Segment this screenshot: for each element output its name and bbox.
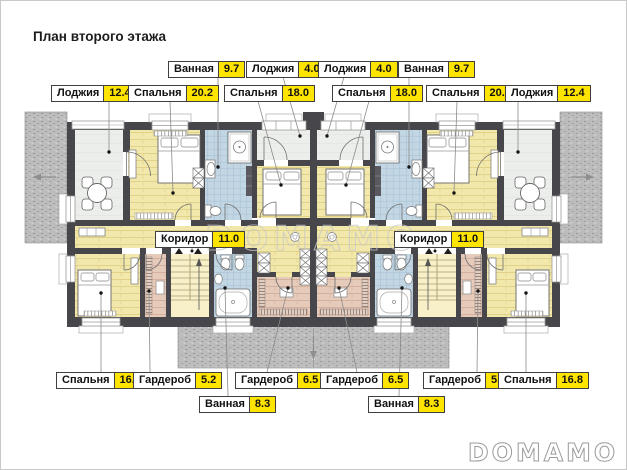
room-area: 20.2 bbox=[186, 86, 218, 101]
room-area: 18.0 bbox=[390, 86, 422, 101]
room-area: 4.0 bbox=[370, 62, 396, 77]
room-area: 11.0 bbox=[212, 232, 244, 247]
room-label-loggia12-r: Лоджия12.4 bbox=[505, 85, 591, 102]
cabinet bbox=[246, 166, 252, 196]
room-label-bathroom-tr: Ванная9.7 bbox=[398, 61, 475, 78]
room-name: Гардероб bbox=[236, 373, 297, 388]
room-area: 12.4 bbox=[557, 86, 589, 101]
room-name: Спальня bbox=[57, 373, 114, 388]
room-name: Ванная bbox=[169, 62, 218, 77]
room-label-loggia4-r: Лоджия4.0 bbox=[318, 61, 398, 78]
room-name: Лоджия bbox=[506, 86, 557, 101]
room-name: Спальня bbox=[333, 86, 390, 101]
room-label-wardrobe6-r: Гардероб6.5 bbox=[320, 372, 409, 389]
room-area: 8.3 bbox=[418, 397, 444, 412]
dresser bbox=[79, 228, 105, 236]
room-label-bathroom8-r: Ванная8.3 bbox=[368, 396, 445, 413]
room-name: Лоджия bbox=[247, 62, 298, 77]
room-label-loggia12-l: Лоджия12.4 bbox=[51, 85, 137, 102]
room-label-corridor-l: Коридор11.0 bbox=[155, 231, 245, 248]
room-label-bedroom20-l: Спальня20.2 bbox=[128, 85, 219, 102]
room-name: Ванная bbox=[399, 62, 448, 77]
room-name: Спальня bbox=[225, 86, 282, 101]
room-label-bedroom16-r: Спальня16.8 bbox=[498, 372, 589, 389]
room-area: 9.7 bbox=[448, 62, 474, 77]
room-label-wardrobe6-l: Гардероб6.5 bbox=[235, 372, 324, 389]
dresser bbox=[131, 258, 138, 284]
room-label-bedroom20-r: Спальня20.2 bbox=[426, 85, 517, 102]
room-name: Спальня bbox=[499, 373, 556, 388]
room-name: Гардероб bbox=[321, 373, 382, 388]
room-area: 16.8 bbox=[556, 373, 588, 388]
room-name: Коридор bbox=[156, 232, 212, 247]
room-area: 6.5 bbox=[382, 373, 408, 388]
room-label-bedroom18-l: Спальня18.0 bbox=[224, 85, 315, 102]
room-label-corridor-r: Коридор11.0 bbox=[394, 231, 484, 248]
room-area: 18.0 bbox=[282, 86, 314, 101]
room-label-bathroom8-l: Ванная8.3 bbox=[199, 396, 276, 413]
room-name: Спальня bbox=[129, 86, 186, 101]
room-name: Коридор bbox=[395, 232, 451, 247]
room-area: 8.3 bbox=[249, 397, 275, 412]
radiator bbox=[84, 311, 116, 316]
room-label-bedroom18-r: Спальня18.0 bbox=[332, 85, 423, 102]
room-area: 9.7 bbox=[218, 62, 244, 77]
room-name: Лоджия bbox=[319, 62, 370, 77]
room-label-loggia4-l: Лоджия4.0 bbox=[246, 61, 326, 78]
room-name: Спальня bbox=[427, 86, 484, 101]
floor-plan-page: План второго этажа bbox=[0, 0, 627, 470]
radiator bbox=[154, 131, 187, 136]
room-name: Лоджия bbox=[52, 86, 103, 101]
room-area: 11.0 bbox=[451, 232, 483, 247]
room-name: Гардероб bbox=[424, 373, 485, 388]
sink bbox=[215, 274, 223, 284]
room-name: Гардероб bbox=[134, 373, 195, 388]
bathtub bbox=[216, 289, 250, 316]
room-name: Ванная bbox=[369, 397, 418, 412]
cabinet bbox=[129, 150, 136, 178]
room-name: Ванная bbox=[200, 397, 249, 412]
brand-logo: DOMAMO bbox=[468, 438, 618, 467]
room-label-bathroom-tl: Ванная9.7 bbox=[168, 61, 245, 78]
room-area: 5.2 bbox=[195, 373, 221, 388]
radiator bbox=[135, 213, 173, 219]
room-label-wardrobe5-l: Гардероб5.2 bbox=[133, 372, 222, 389]
room-loggia-4 bbox=[257, 126, 310, 160]
